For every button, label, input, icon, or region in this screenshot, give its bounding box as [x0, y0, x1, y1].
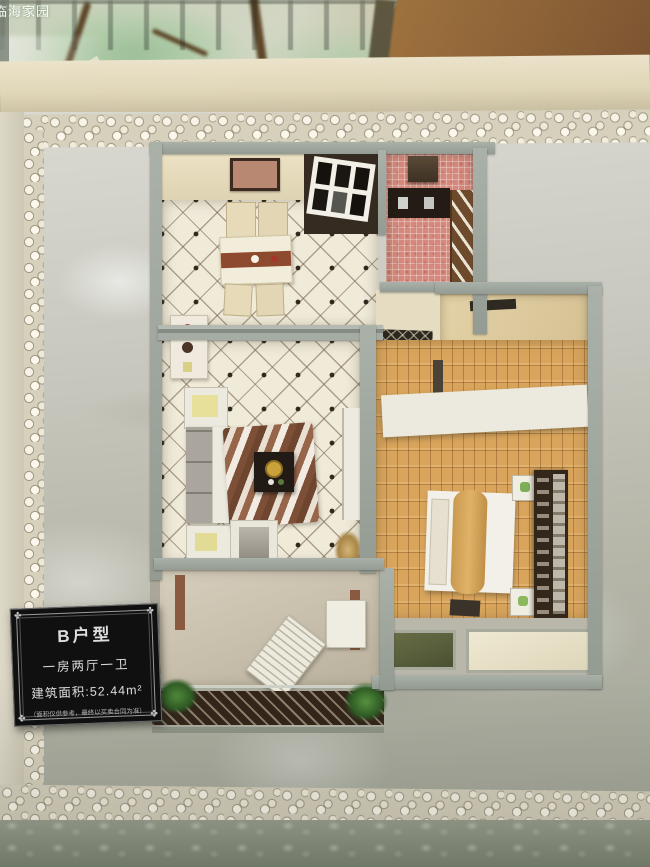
floor-mat [450, 599, 481, 617]
sofa-cushions [186, 427, 212, 523]
wall-kitchen-south [380, 282, 442, 292]
wardrobe-carving [537, 474, 549, 614]
table-top [239, 527, 269, 561]
pillow [428, 499, 449, 586]
wall-north [150, 142, 495, 154]
gold-plate [265, 460, 283, 478]
wall-kitchen-east [473, 148, 487, 334]
panel-cell [353, 167, 370, 190]
wall-west [150, 142, 162, 580]
bed [424, 490, 515, 593]
balcony-cabinet [326, 600, 366, 648]
wall-bath-north [435, 282, 602, 294]
wall-south [372, 675, 602, 689]
wall-picture [230, 158, 280, 191]
apartment-model [150, 140, 605, 740]
sofa-end-table [186, 525, 232, 561]
yellow-item [183, 362, 192, 372]
entry-decor-panel [306, 156, 375, 222]
dining-table [219, 235, 293, 285]
wall-dining-living [158, 325, 383, 340]
teacup [278, 479, 284, 485]
kitchen-counter [388, 188, 450, 218]
reflective-edge [0, 820, 650, 867]
dining-chair [223, 283, 253, 316]
balcony-post [175, 575, 185, 630]
dark-bowl [182, 342, 193, 353]
chaise-cushion [192, 395, 218, 417]
dining-chair [255, 284, 284, 317]
wall-living-bedroom [360, 325, 376, 573]
green-decor [518, 596, 528, 606]
green-decor [520, 482, 530, 492]
dining-chair [258, 202, 288, 238]
teacup [268, 479, 274, 485]
panel-cell [350, 193, 367, 216]
wall-living-balcony [154, 558, 384, 570]
range-hood [408, 156, 438, 182]
watermark-text: 临海家园 [0, 1, 50, 20]
yellow-cushion [195, 533, 217, 551]
wall-entry-kitchen [378, 150, 386, 235]
plaque-corner-ornament: ✤ [146, 606, 154, 615]
stove-knob [398, 197, 408, 209]
wall-balcony-east [380, 568, 394, 690]
balcony-plant [156, 678, 198, 714]
stove-knob [424, 197, 434, 209]
info-plaque: ✤ ✤ ✤ ✤ B户型 一房两厅一卫 建筑面积:52.44m² （面积仅供参考，… [10, 603, 162, 727]
planter-box-cream [466, 629, 592, 673]
bed-blanket [450, 489, 488, 594]
plaque-corner-ornament: ✤ [14, 611, 22, 620]
wardrobe-carving [553, 474, 565, 614]
panel-cell [334, 164, 351, 187]
sofa-chaise [184, 387, 228, 429]
panel-cell [312, 188, 329, 211]
plaque-frame [16, 609, 156, 720]
railing-lip [152, 727, 384, 733]
panel-cell [316, 162, 333, 185]
coffee-table [254, 452, 294, 492]
wardrobe [534, 470, 568, 618]
photo-scene: 临海家园 [0, 0, 650, 867]
wall-east [588, 286, 602, 688]
panel-cell [331, 191, 348, 214]
dining-chair [226, 202, 256, 238]
